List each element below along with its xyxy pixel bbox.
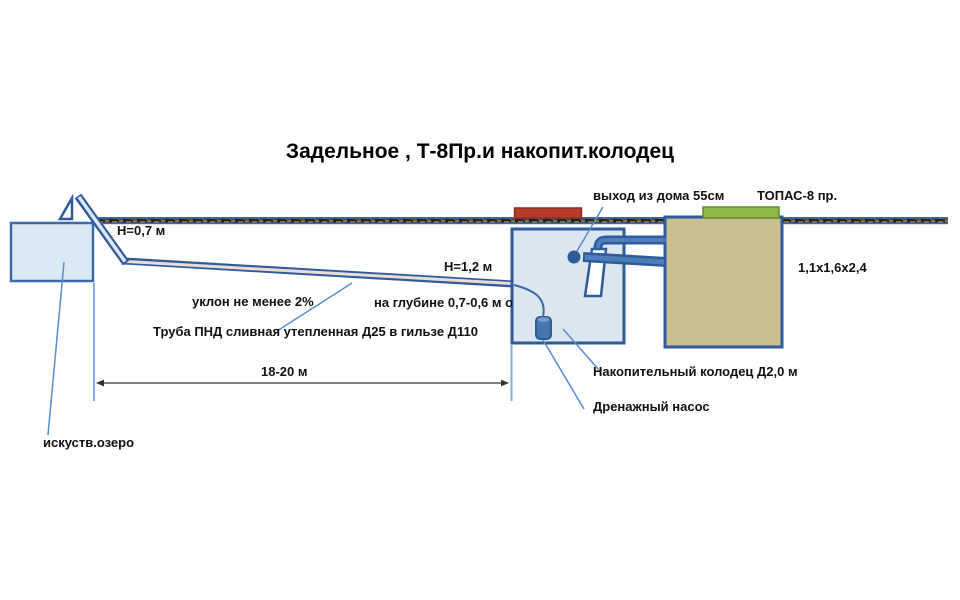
label-drain-pump: Дренажный насос: [593, 400, 710, 414]
topas-tank: [665, 217, 782, 347]
storage-well-tank: [512, 229, 624, 343]
flag-marker: [60, 198, 72, 219]
label-distance: 18-20 м: [261, 365, 307, 379]
label-house-exit: выход из дома 55см: [593, 189, 724, 203]
dimension-line: [96, 380, 509, 387]
label-topas-size: 1,1x1,6x2,4: [798, 261, 867, 275]
label-storage-well: Накопительный колодец Д2,0 м: [593, 365, 798, 379]
label-pipe-spec: Труба ПНД сливная утепленная Д25 в гильз…: [153, 325, 478, 339]
topas-lid-green: [703, 207, 779, 218]
ground-line-right: [782, 217, 948, 224]
lake-leader-line: [48, 262, 64, 435]
house-outlet-dot: [568, 251, 581, 264]
label-burial-depth: на глубине 0,7-0,6 м от по: [374, 296, 512, 310]
label-lake: искуств.озеро: [43, 436, 134, 450]
well-lid-red: [515, 208, 582, 218]
label-depth-right: H=1,2 м: [444, 260, 492, 274]
label-topas-name: ТОПАС-8 пр.: [757, 189, 837, 203]
artificial-lake: [11, 223, 93, 281]
diagram-title: Задельное , Т-8Пр.и накопит.колодец: [0, 140, 960, 164]
label-depth-left: H=0,7 м: [117, 224, 165, 238]
pump-leader-line: [543, 340, 584, 409]
drainage-pump: [536, 317, 551, 339]
label-slope: уклон не менее 2%: [192, 295, 314, 309]
diagram-canvas: Задельное , Т-8Пр.и накопит.колодец выхо…: [0, 0, 960, 600]
overflow-pipe: [583, 257, 666, 262]
